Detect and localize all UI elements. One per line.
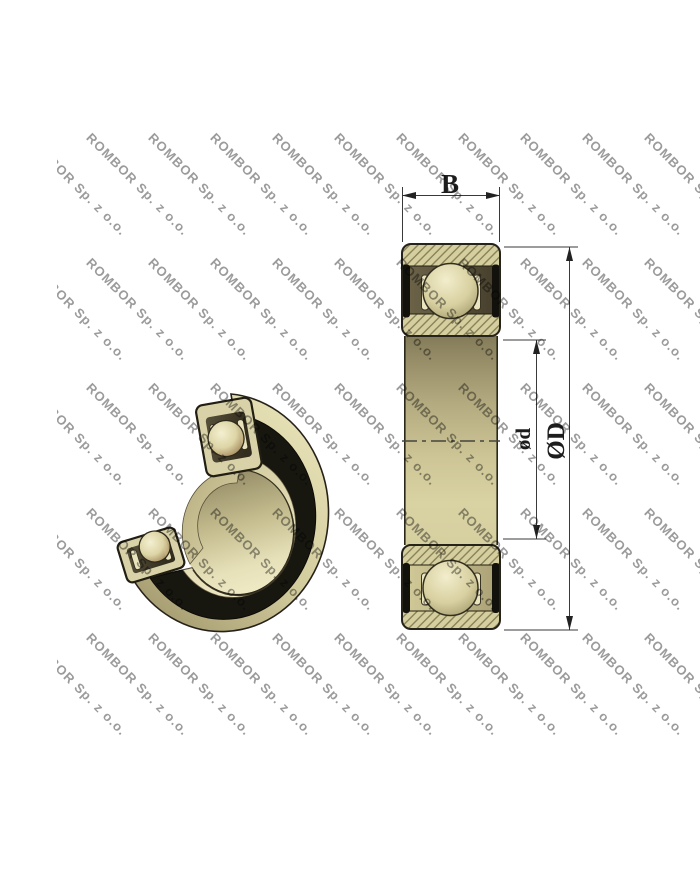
cut-face-top — [195, 397, 263, 478]
bearing-technical-drawing-page: B ød ØD ROMBOR Sp. z o.o.ROMBOR Sp. z o.… — [0, 0, 700, 869]
arrowhead-up — [566, 247, 573, 261]
seal-left-top — [403, 265, 411, 318]
seal-right-bottom — [492, 563, 500, 613]
arrowhead-down — [566, 616, 573, 630]
ball-top-section — [423, 264, 478, 319]
bearing-drawing-canvas: B ød ØD — [0, 0, 700, 869]
label-outer-D: ØD — [543, 422, 570, 460]
cross-section-view: B ød ØD — [402, 169, 578, 630]
arrowhead-down — [533, 525, 540, 539]
bearing-3d-view — [116, 394, 329, 632]
seal-right-top — [492, 265, 500, 318]
ball-bottom-section — [423, 561, 478, 616]
seal-left-bottom — [403, 563, 411, 613]
arrowhead-up — [533, 340, 540, 354]
arrowhead-left — [402, 192, 416, 199]
label-width-B: B — [441, 169, 459, 199]
ring-section-top — [402, 244, 500, 336]
arrowhead-right — [486, 192, 500, 199]
ring-section-bottom — [402, 545, 500, 629]
label-bore-d: ød — [511, 428, 535, 451]
